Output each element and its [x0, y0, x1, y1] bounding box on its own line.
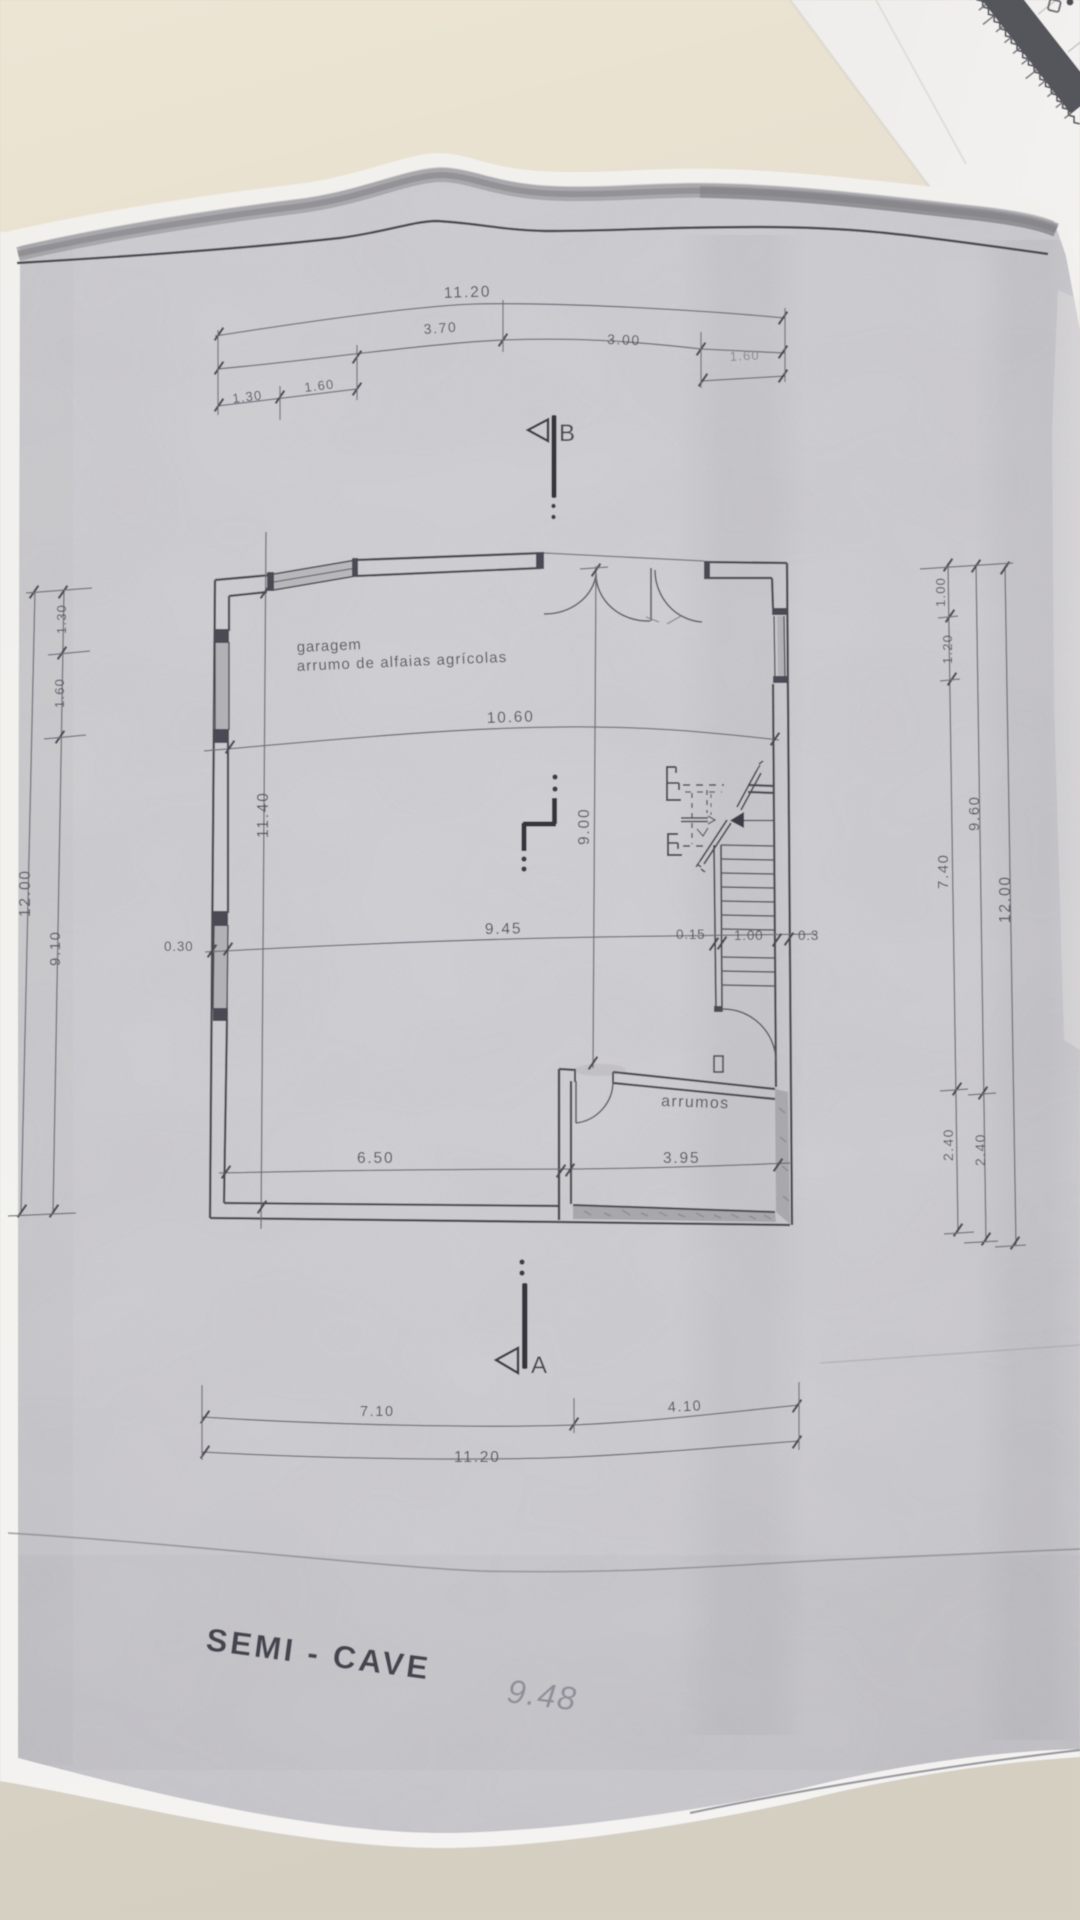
svg-text:9.60: 9.60	[966, 795, 983, 831]
svg-text:0.30: 0.30	[164, 939, 193, 954]
svg-text:1.60: 1.60	[52, 678, 67, 708]
svg-text:2.40: 2.40	[940, 1128, 956, 1161]
svg-text:arrumos: arrumos	[661, 1093, 730, 1112]
svg-text:4.10: 4.10	[667, 1398, 702, 1416]
svg-text:0.15: 0.15	[676, 927, 705, 942]
svg-text:10.60: 10.60	[487, 708, 535, 727]
svg-text:9.10: 9.10	[47, 930, 64, 966]
svg-text:11.40: 11.40	[255, 791, 272, 838]
svg-text:1.60: 1.60	[729, 347, 760, 364]
svg-text:9.45: 9.45	[485, 920, 523, 938]
svg-text:12.00: 12.00	[997, 875, 1014, 923]
svg-text:7.40: 7.40	[935, 853, 952, 889]
svg-text:B: B	[559, 420, 576, 447]
svg-text:0.3: 0.3	[798, 928, 819, 943]
svg-text:11.20: 11.20	[454, 1449, 501, 1466]
svg-text:1.00: 1.00	[734, 928, 763, 943]
svg-text:1.30: 1.30	[54, 604, 69, 634]
svg-text:3.70: 3.70	[423, 319, 458, 337]
svg-text:9.00: 9.00	[576, 808, 593, 845]
svg-text:6.50: 6.50	[357, 1150, 394, 1167]
svg-text:A: A	[531, 1352, 548, 1379]
svg-text:3.00: 3.00	[607, 331, 641, 348]
svg-text:12.00: 12.00	[17, 869, 34, 917]
svg-text:3.95: 3.95	[663, 1150, 700, 1167]
svg-text:1.20: 1.20	[940, 634, 955, 664]
svg-text:garagem: garagem	[296, 636, 361, 656]
svg-text:2.40: 2.40	[972, 1133, 988, 1166]
svg-text:7.10: 7.10	[360, 1404, 395, 1420]
svg-text:1.00: 1.00	[933, 577, 948, 607]
svg-text:11.20: 11.20	[444, 283, 492, 302]
